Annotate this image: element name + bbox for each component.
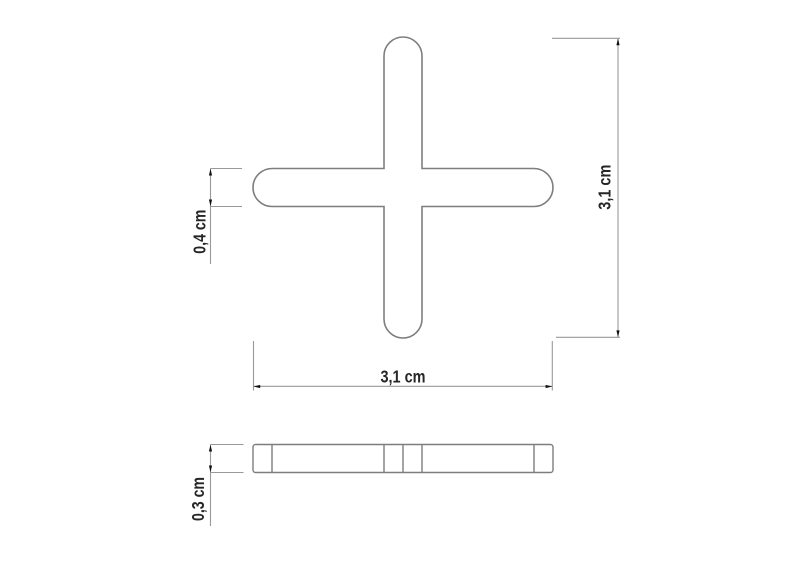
svg-text:3,1 cm: 3,1 cm: [381, 367, 426, 387]
svg-text:0,4 cm: 0,4 cm: [190, 210, 210, 254]
svg-text:3,1 cm: 3,1 cm: [595, 165, 615, 210]
svg-text:0,3 cm: 0,3 cm: [188, 477, 208, 521]
